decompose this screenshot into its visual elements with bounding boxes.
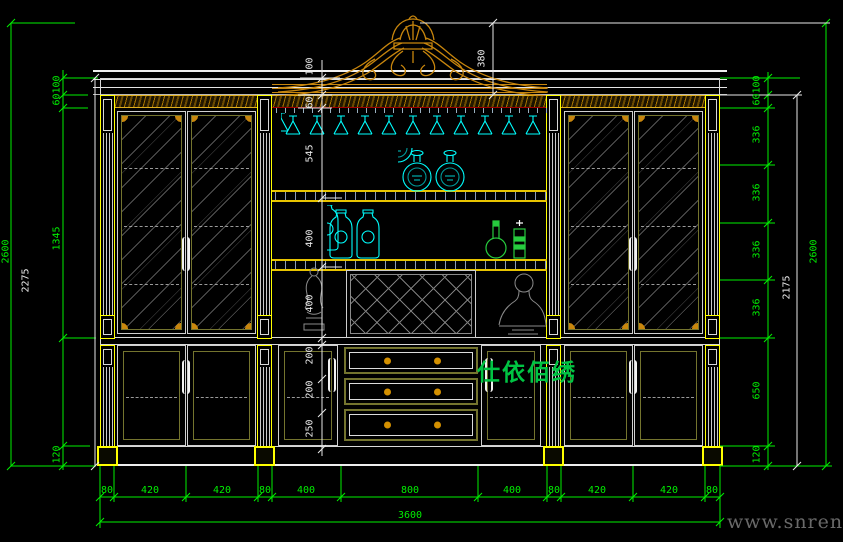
dim-label: 80 [548, 485, 560, 496]
brand-watermark: 仕依佰绣 [477, 353, 577, 387]
website-watermark: www.snren.com [727, 511, 843, 533]
dim-label: 80 [101, 485, 113, 496]
dim-label: 80 [259, 485, 271, 496]
dim-label: 400 [305, 217, 316, 261]
dim-label-total-width: 3600 [398, 510, 422, 521]
dim-label: 336 [752, 171, 763, 215]
dim-label: 650 [752, 369, 763, 413]
dim-label: 250 [305, 407, 316, 451]
dim-label: 120 [752, 433, 763, 477]
dim-label: 420 [213, 485, 231, 496]
dim-label: 60 [305, 81, 316, 125]
dim-label-crown-height: 380 [477, 37, 488, 81]
dim-label: 336 [752, 286, 763, 330]
dim-label-overall-height: 2600 [809, 230, 820, 274]
dim-label-body-height: 2175 [782, 266, 793, 310]
dim-label: 60 [52, 78, 63, 122]
dim-label: 336 [752, 228, 763, 272]
dim-label: 200 [305, 368, 316, 412]
dim-label-body-height: 2275 [21, 259, 32, 303]
dim-label: 1345 [52, 217, 63, 261]
dim-label: 400 [297, 485, 315, 496]
dimension-lines [0, 0, 843, 542]
dim-label: 400 [305, 282, 316, 326]
dim-label: 420 [660, 485, 678, 496]
cad-canvas: 100 60 1345 120 2275 2600 100 60 545 400… [0, 0, 843, 542]
dim-label: 420 [588, 485, 606, 496]
dim-label: 800 [401, 485, 419, 496]
dim-label: 120 [52, 433, 63, 477]
dim-label: 336 [752, 113, 763, 157]
dim-label: 400 [503, 485, 521, 496]
dim-label: 545 [305, 132, 316, 176]
dim-label-overall-height: 2600 [1, 230, 12, 274]
dim-label: 420 [141, 485, 159, 496]
dim-label: 80 [706, 485, 718, 496]
